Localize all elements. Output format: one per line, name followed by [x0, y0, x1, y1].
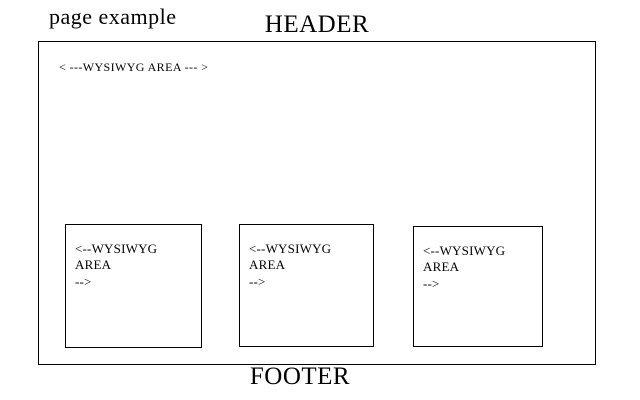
- wysiwyg-area-box-1[interactable]: <--WYSIWYG AREA -->: [65, 224, 202, 348]
- footer-label: FOOTER: [0, 363, 600, 391]
- wysiwyg-area-box-2[interactable]: <--WYSIWYG AREA -->: [239, 224, 374, 347]
- wysiwyg-main-area-label: < ---WYSIWYG AREA --- >: [59, 60, 208, 75]
- wysiwyg-area-box-3[interactable]: <--WYSIWYG AREA -->: [413, 226, 543, 347]
- wysiwyg-area-box-3-label: <--WYSIWYG AREA -->: [414, 227, 542, 292]
- page-example-wireframe: page example HEADER < ---WYSIWYG AREA --…: [0, 0, 640, 400]
- wysiwyg-area-box-1-label: <--WYSIWYG AREA -->: [66, 225, 201, 290]
- header-label: HEADER: [38, 11, 596, 39]
- page-canvas: < ---WYSIWYG AREA --- > <--WYSIWYG AREA …: [38, 41, 596, 365]
- wysiwyg-area-box-2-label: <--WYSIWYG AREA -->: [240, 225, 373, 290]
